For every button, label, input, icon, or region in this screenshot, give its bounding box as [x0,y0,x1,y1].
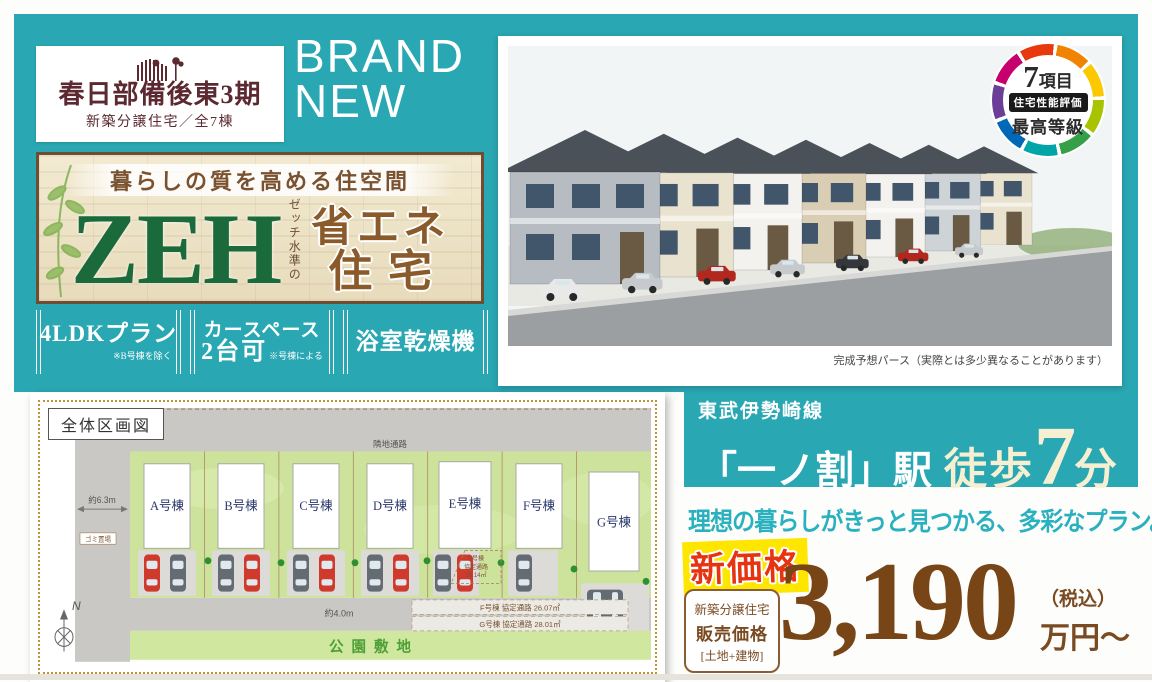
award-category-label: 住宅性能評価 [1009,93,1088,112]
note-g: G号棟 協定通路 28.01㎡ [479,619,561,629]
site-plan-drawing: 隣地通路 [44,406,651,668]
project-name: 春日部備後東3期 [58,81,261,108]
building-g-label: G号棟 [597,516,631,530]
neighbor-path-label: 隣地通路 [373,438,407,449]
park-label: 公園敷地 [329,637,419,655]
project-subtitle: 新築分譲住宅／全7棟 [86,111,234,131]
road-dimension-label: 約4.0m [325,607,354,618]
walk-minutes: 7 [1034,423,1074,490]
energy-saving-line1: 省エネ [311,206,449,250]
award-count: 7 [1023,63,1039,91]
price-label-box: 新築分譲住宅 販売価格 [土地+建物] [684,589,780,673]
feature-bath-dryer-label: 浴室乾燥機 [344,330,487,354]
award-count-unit: 項目 [1039,67,1073,92]
note-e-name: E号棟 [468,555,484,563]
building-c-label: C号棟 [299,499,333,513]
building-b-label: B号棟 [224,499,258,513]
west-dimension-label: 約6.3m [88,494,115,505]
catch-copy: 理想の暮らしがきっと見つかる、多彩なプラン。 [688,502,1152,538]
note-e-label: 協定通路 [464,563,488,571]
note-f: F号棟 協定通路 26.07㎡ [480,603,560,613]
zeh-banner: 暮らしの質を高める住空間 ZEH ゼッチ水準の 省エネ 住宅 [36,152,484,304]
station-name: 「一ノ割」駅 [698,440,932,496]
building-e-label: E号棟 [449,497,482,511]
feature-4ldk: 4LDKプラン ※B号棟を除く [36,310,181,374]
building-d-label: D号棟 [373,499,407,513]
zeh-ruby-text: ゼッチ水準の [286,198,303,302]
rendering-caption: 完成予想パース（実際とは多少異なることがあります） [508,346,1112,368]
site-plan-border: 全体区画図 隣地通路 [38,400,657,674]
site-plan-title: 全体区画図 [48,408,164,440]
feature-badges: 4LDKプラン ※B号棟を除く カースペース 2台可 ※号棟による 浴室乾燥機 [36,310,488,374]
project-logo-card: 春日部備後東3期 新築分譲住宅／全7棟 [36,46,284,142]
feature-4ldk-note: ※B号棟を除く [37,349,180,362]
housing-performance-award-badge: 7 項目 住宅性能評価 最高等級 [992,44,1104,156]
price-scope: [土地+建物] [686,647,778,664]
feature-carspace-note: ※号棟による [269,349,323,362]
price-category: 新築分譲住宅 [686,599,778,618]
brand-new-line1: BRAND [294,34,465,79]
compass-north-label: N [72,599,81,613]
award-grade: 最高等級 [1012,113,1084,138]
building-f-label: F号棟 [523,499,555,513]
feature-carspace: カースペース 2台可 ※号棟による [190,310,335,374]
price-unit: 万円〜 [1040,613,1130,657]
price-label: 販売価格 [686,620,778,645]
brand-new-line2: NEW [294,79,465,124]
fence-trees-logo-icon [129,57,191,81]
trash-area-label: ゴミ置場 [85,535,111,544]
site-plan-card: 全体区画図 隣地通路 [30,392,665,682]
energy-saving-line2: 住宅 [311,250,449,294]
feature-carspace-label: カースペース [191,321,334,340]
feature-carspace-count: 2台可 [201,340,267,364]
feature-4ldk-label: 4LDKプラン [37,322,180,346]
flyer-page: 春日部備後東3期 新築分譲住宅／全7棟 BRAND NEW 暮らしの質を高める住… [0,0,1152,680]
page-bottom-edge [0,674,1152,680]
tax-note: （税込） [1040,584,1130,611]
zeh-word: ZEH [71,205,280,295]
walk-label: 徒歩 [944,435,1034,497]
price-amount: 3,190 [779,546,1016,658]
building-a-label: A号棟 [150,499,184,513]
access-info: 東武伊勢崎線 「一ノ割」駅 徒歩 7 分 [698,396,1117,497]
zeh-tagline: 暮らしの質を高める住空間 [66,164,455,196]
walk-minutes-unit: 分 [1074,435,1117,497]
award-badge-center: 7 項目 住宅性能評価 最高等級 [1003,55,1093,145]
brand-new-heading: BRAND NEW [294,34,465,124]
feature-bath-dryer: 浴室乾燥機 [343,310,488,374]
price-tax-unit: （税込） 万円〜 [1040,584,1130,657]
energy-saving-label: 省エネ 住宅 [311,206,449,294]
note-e-area: 19.14㎡ [466,571,487,579]
